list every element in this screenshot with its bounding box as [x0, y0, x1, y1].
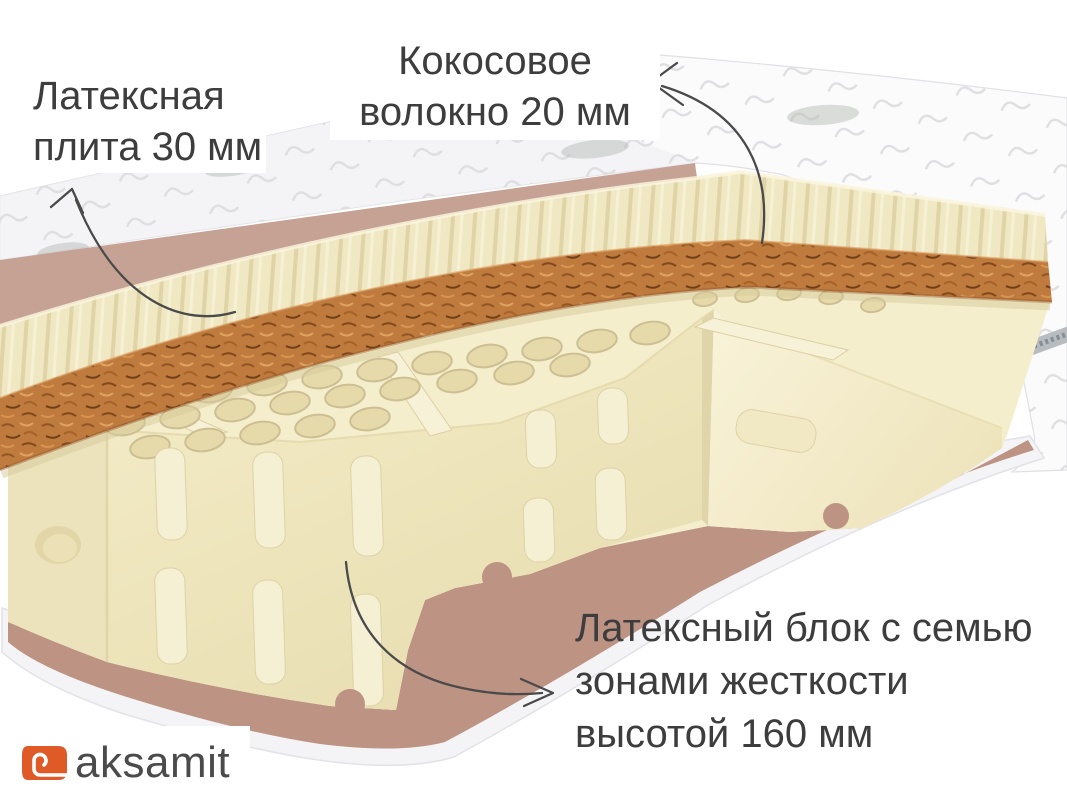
label-latex-plate-line2: плита 30 мм — [33, 122, 266, 173]
brand-logo-text: aksamit — [75, 738, 230, 788]
label-latex-block-line2: зонами жесткости — [575, 655, 1035, 708]
label-coconut-fiber: Кокосовое волокно 20 мм — [330, 22, 660, 140]
label-latex-plate: Латексная плита 30 мм — [0, 55, 266, 173]
mattress-layers-diagram: Латексная плита 30 мм Кокосовое волокно … — [0, 0, 1067, 800]
label-coconut-line1: Кокосовое — [330, 36, 660, 87]
label-coconut-line2: волокно 20 мм — [330, 87, 660, 138]
label-latex-block: Латексный блок с семью зонами жесткости … — [575, 602, 1035, 761]
brand-logo: aksamit — [0, 726, 250, 800]
label-latex-plate-line1: Латексная — [33, 71, 266, 122]
label-latex-block-line1: Латексный блок с семью — [575, 602, 1035, 655]
sofa-icon — [22, 743, 68, 783]
side-vent-hole-inner — [43, 534, 77, 562]
label-latex-block-line3: высотой 160 мм — [575, 708, 1035, 761]
